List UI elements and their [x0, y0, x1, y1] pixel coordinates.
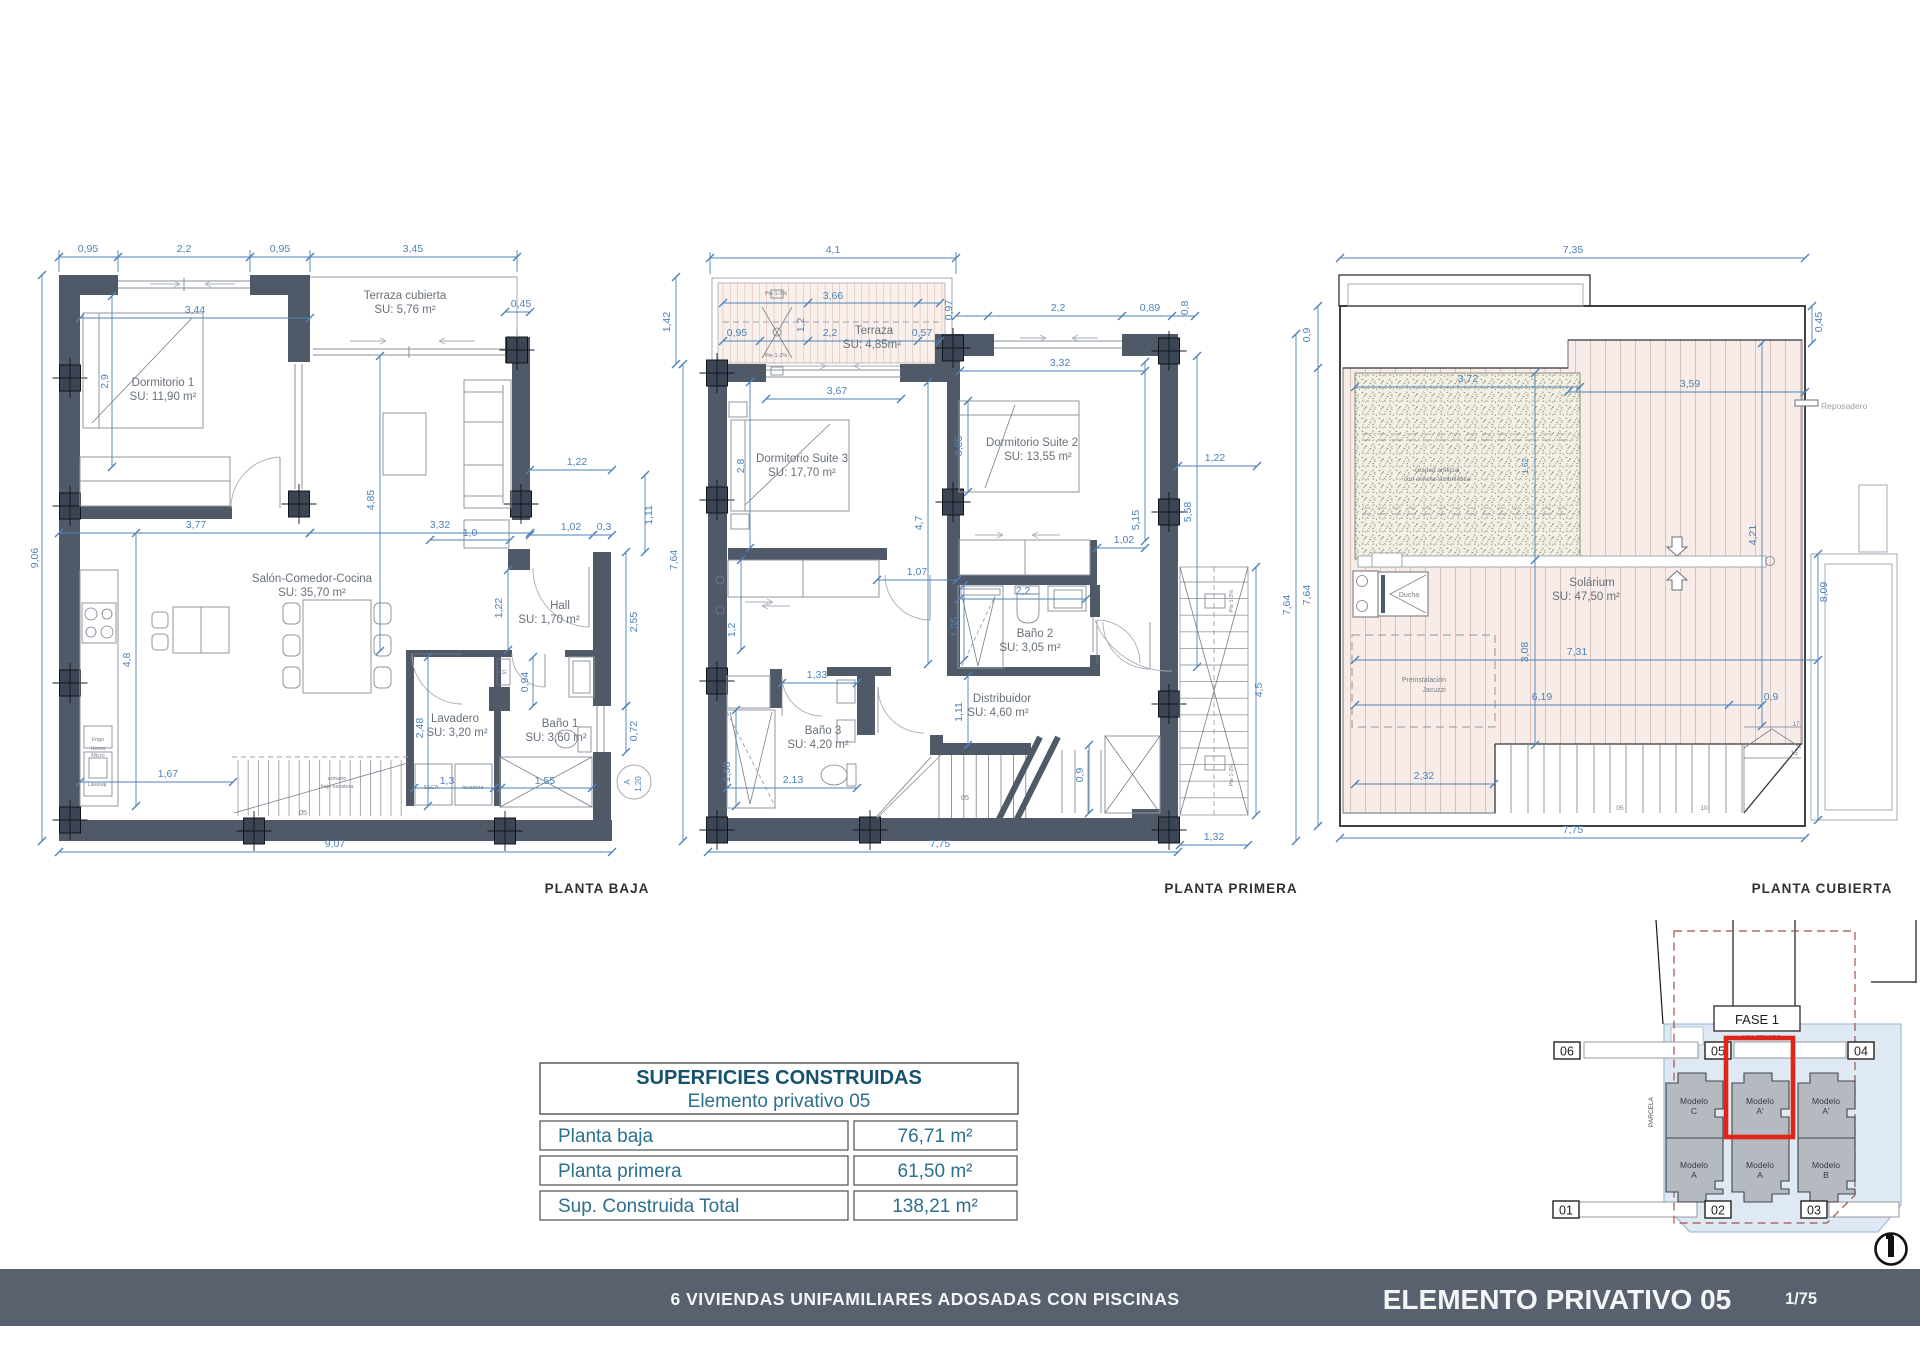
svg-text:Planta baja: Planta baja — [558, 1126, 654, 1147]
svg-text:Preinstalación: Preinstalación — [1402, 677, 1446, 684]
svg-text:Jacuzzi: Jacuzzi — [1422, 687, 1446, 694]
svg-text:SUPERFICIES CONSTRUIDAS: SUPERFICIES CONSTRUIDAS — [636, 1067, 922, 1089]
svg-text:1,58: 1,58 — [721, 762, 733, 783]
svg-text:Solárium: Solárium — [1569, 577, 1614, 589]
svg-text:0,9: 0,9 — [1074, 768, 1086, 783]
svg-text:SU: 1,70 m²: SU: 1,70 m² — [518, 614, 580, 626]
svg-text:césped artificial: césped artificial — [1415, 467, 1460, 474]
svg-text:ELEMENTO PRIVATIVO 05: ELEMENTO PRIVATIVO 05 — [1383, 1284, 1732, 1315]
svg-text:Horno: Horno — [91, 746, 106, 752]
svg-text:8,09: 8,09 — [1818, 582, 1830, 603]
svg-text:1,02: 1,02 — [1114, 534, 1135, 546]
svg-text:Pte 1-2%: Pte 1-2% — [1229, 590, 1235, 613]
svg-text:SU: 4,60 m²: SU: 4,60 m² — [967, 707, 1029, 719]
svg-text:Dormitorio 1: Dormitorio 1 — [132, 377, 195, 389]
svg-text:Hall: Hall — [550, 600, 570, 612]
svg-text:3,66: 3,66 — [823, 290, 844, 302]
svg-text:3,67: 3,67 — [827, 385, 848, 397]
svg-text:2,48: 2,48 — [414, 718, 426, 739]
svg-text:02: 02 — [1711, 1204, 1725, 1218]
svg-text:0,3: 0,3 — [597, 521, 612, 533]
svg-text:C: C — [1691, 1106, 1697, 1116]
svg-text:0,9: 0,9 — [1301, 328, 1313, 343]
svg-text:2,2: 2,2 — [1016, 585, 1031, 597]
svg-text:05: 05 — [961, 795, 969, 802]
svg-text:SU: 4,20 m²: SU: 4,20 m² — [787, 739, 849, 751]
svg-text:PLANTA CUBIERTA: PLANTA CUBIERTA — [1752, 881, 1893, 896]
svg-text:0,95: 0,95 — [78, 243, 99, 255]
svg-text:4,8: 4,8 — [121, 653, 133, 668]
svg-text:3,59: 3,59 — [1680, 378, 1701, 390]
svg-text:Planta primera: Planta primera — [558, 1161, 682, 1182]
svg-text:PLANTA PRIMERA: PLANTA PRIMERA — [1164, 881, 1297, 896]
svg-text:5,15: 5,15 — [1130, 510, 1142, 531]
svg-text:SU: 47,50 m²: SU: 47,50 m² — [1552, 591, 1620, 603]
svg-text:7,64: 7,64 — [1301, 585, 1313, 606]
svg-text:4,21: 4,21 — [1747, 525, 1759, 546]
svg-text:3,08: 3,08 — [1519, 642, 1531, 663]
svg-text:1,62: 1,62 — [1521, 458, 1530, 474]
svg-text:Baño 2: Baño 2 — [1017, 628, 1053, 640]
svg-text:1,22: 1,22 — [567, 456, 588, 468]
svg-text:138,21 m²: 138,21 m² — [892, 1196, 978, 1217]
svg-text:0,89: 0,89 — [1140, 302, 1161, 314]
svg-text:4,7: 4,7 — [913, 516, 925, 531]
svg-text:1,3: 1,3 — [440, 775, 455, 787]
svg-text:0,45: 0,45 — [1813, 312, 1825, 333]
svg-text:Frigo: Frigo — [92, 737, 105, 743]
svg-text:3,72: 3,72 — [1458, 373, 1479, 385]
svg-text:0,45: 0,45 — [511, 298, 532, 310]
svg-text:15: 15 — [1790, 750, 1798, 757]
svg-text:1,0: 1,0 — [463, 527, 478, 539]
svg-text:76,71 m²: 76,71 m² — [898, 1126, 973, 1147]
svg-text:1,20: 1,20 — [634, 776, 643, 792]
svg-text:Pte 1-2%: Pte 1-2% — [1229, 764, 1235, 787]
svg-text:Dormitorio Suite 2: Dormitorio Suite 2 — [986, 437, 1078, 449]
svg-text:7,64: 7,64 — [668, 550, 680, 571]
svg-text:Pte 1-2%: Pte 1-2% — [765, 353, 788, 359]
svg-text:1,11: 1,11 — [643, 505, 655, 525]
svg-text:9,07: 9,07 — [325, 838, 346, 850]
svg-text:SU: 11,90 m²: SU: 11,90 m² — [130, 391, 197, 403]
svg-text:A: A — [623, 779, 632, 785]
svg-text:0,97: 0,97 — [943, 300, 955, 321]
svg-text:05: 05 — [299, 810, 307, 817]
svg-text:B: B — [1823, 1170, 1829, 1180]
svg-text:1,42: 1,42 — [661, 312, 673, 333]
svg-text:1,07: 1,07 — [907, 566, 928, 578]
svg-text:0,95: 0,95 — [270, 243, 291, 255]
svg-text:CE: CE — [499, 670, 507, 676]
svg-text:Terraza: Terraza — [855, 325, 894, 337]
svg-text:SU: 5,76 m²: SU: 5,76 m² — [374, 304, 436, 316]
svg-text:Lavavaj: Lavavaj — [88, 782, 107, 788]
svg-text:Reposadero: Reposadero — [1821, 401, 1868, 411]
svg-text:Ducha: Ducha — [1399, 592, 1419, 599]
svg-text:0,94: 0,94 — [519, 672, 531, 693]
svg-text:Modelo: Modelo — [1680, 1096, 1708, 1106]
svg-text:7,64: 7,64 — [1281, 595, 1293, 616]
svg-text:5,58: 5,58 — [1182, 502, 1194, 523]
svg-text:2,13: 2,13 — [783, 774, 804, 786]
svg-text:A: A — [1691, 1170, 1697, 1180]
svg-text:Modelo: Modelo — [1812, 1096, 1840, 1106]
svg-text:3,44: 3,44 — [185, 304, 206, 316]
svg-text:0,72: 0,72 — [628, 721, 640, 742]
svg-text:7,75: 7,75 — [930, 838, 951, 850]
svg-text:01: 01 — [1559, 1204, 1573, 1218]
svg-text:04: 04 — [1854, 1045, 1868, 1059]
svg-text:2,9: 2,9 — [99, 374, 111, 389]
svg-text:4,1: 4,1 — [826, 244, 841, 256]
svg-text:SU: 35,70 m²: SU: 35,70 m² — [278, 587, 346, 599]
svg-text:0,95: 0,95 — [727, 327, 748, 339]
svg-text:PLANTA BAJA: PLANTA BAJA — [545, 881, 650, 896]
svg-text:2,2: 2,2 — [177, 243, 192, 255]
svg-text:SU: 17,70 m²: SU: 17,70 m² — [768, 467, 836, 479]
svg-text:Modelo: Modelo — [1680, 1160, 1708, 1170]
svg-text:10: 10 — [1700, 805, 1708, 812]
svg-text:1,11: 1,11 — [953, 702, 965, 722]
svg-text:4,5: 4,5 — [1253, 683, 1265, 698]
svg-text:Terraza cubierta: Terraza cubierta — [364, 290, 447, 302]
svg-text:2,2: 2,2 — [823, 327, 838, 339]
svg-text:SU: 3,60 m²: SU: 3,60 m² — [525, 732, 587, 744]
svg-text:PARCELA: PARCELA — [1648, 1096, 1655, 1127]
svg-text:Sup. Construida Total: Sup. Construida Total — [558, 1196, 739, 1217]
svg-text:3,32: 3,32 — [430, 519, 451, 531]
svg-text:7,75: 7,75 — [1563, 824, 1584, 836]
svg-text:SU: 13,55 m²: SU: 13,55 m² — [1004, 451, 1072, 463]
svg-text:05: 05 — [1711, 1045, 1725, 1059]
svg-text:1,02: 1,02 — [561, 521, 582, 533]
svg-text:1,55: 1,55 — [535, 775, 556, 787]
svg-text:Elemento privativo 05: Elemento privativo 05 — [688, 1091, 871, 1112]
svg-text:Modelo: Modelo — [1746, 1160, 1774, 1170]
svg-text:3,45: 3,45 — [403, 243, 424, 255]
svg-text:2,8: 2,8 — [735, 459, 747, 474]
svg-text:03: 03 — [1807, 1204, 1821, 1218]
svg-text:Baño 1: Baño 1 — [542, 718, 578, 730]
svg-text:7,35: 7,35 — [1563, 244, 1584, 256]
svg-text:A': A' — [1822, 1106, 1830, 1116]
svg-text:1,32: 1,32 — [1204, 831, 1225, 843]
svg-text:Modelo: Modelo — [1812, 1160, 1840, 1170]
svg-text:Modelo: Modelo — [1746, 1096, 1774, 1106]
svg-text:3,05: 3,05 — [953, 436, 965, 457]
svg-text:3,32: 3,32 — [1050, 357, 1071, 369]
svg-text:bajo escalera: bajo escalera — [321, 784, 355, 790]
svg-text:1,35: 1,35 — [949, 617, 961, 638]
svg-text:17: 17 — [1792, 721, 1800, 728]
svg-text:1,2: 1,2 — [795, 318, 807, 333]
svg-text:Salón-Comedor-Cocina: Salón-Comedor-Cocina — [252, 573, 373, 585]
svg-text:A: A — [1757, 1170, 1763, 1180]
svg-text:6,19: 6,19 — [1532, 691, 1553, 703]
svg-text:Lavadero: Lavadero — [431, 713, 479, 725]
svg-text:4,85: 4,85 — [365, 490, 377, 511]
svg-text:0,57: 0,57 — [912, 327, 933, 339]
svg-text:0,8: 0,8 — [1179, 301, 1191, 316]
svg-text:Micro: Micro — [91, 753, 104, 759]
svg-text:1,22: 1,22 — [1205, 452, 1226, 464]
svg-text:1/75: 1/75 — [1785, 1290, 1817, 1308]
svg-text:1,67: 1,67 — [158, 768, 179, 780]
svg-text:05: 05 — [1616, 805, 1624, 812]
svg-text:2,55: 2,55 — [628, 612, 640, 633]
svg-text:0,9: 0,9 — [1764, 691, 1779, 703]
svg-text:Dormitorio Suite 3: Dormitorio Suite 3 — [756, 453, 848, 465]
svg-text:06: 06 — [1560, 1045, 1574, 1059]
svg-text:2,32: 2,32 — [1414, 770, 1435, 782]
svg-text:FASE 1: FASE 1 — [1735, 1012, 1779, 1027]
svg-text:armario: armario — [328, 776, 347, 782]
svg-text:2,2: 2,2 — [1051, 302, 1066, 314]
svg-text:1,22: 1,22 — [493, 598, 505, 619]
svg-text:3,77: 3,77 — [186, 519, 207, 531]
svg-text:7,31: 7,31 — [1567, 646, 1588, 658]
svg-text:1,2: 1,2 — [726, 623, 738, 638]
svg-text:con cenefa lambrilofica: con cenefa lambrilofica — [1404, 476, 1471, 483]
svg-text:Baño 3: Baño 3 — [805, 725, 841, 737]
svg-text:61,50 m²: 61,50 m² — [898, 1161, 973, 1182]
svg-text:6 VIVIENDAS UNIFAMILIARES ADOS: 6 VIVIENDAS UNIFAMILIARES ADOSADAS CON P… — [670, 1289, 1179, 1309]
svg-text:1,33: 1,33 — [807, 669, 828, 681]
svg-text:Pte 1-2%: Pte 1-2% — [765, 291, 788, 297]
svg-text:SU: 3,05 m²: SU: 3,05 m² — [999, 642, 1061, 654]
svg-text:SU: 3,20 m²: SU: 3,20 m² — [426, 727, 488, 739]
svg-text:A': A' — [1756, 1106, 1764, 1116]
svg-text:9,06: 9,06 — [29, 548, 41, 569]
svg-text:Distribuidor: Distribuidor — [973, 693, 1031, 705]
